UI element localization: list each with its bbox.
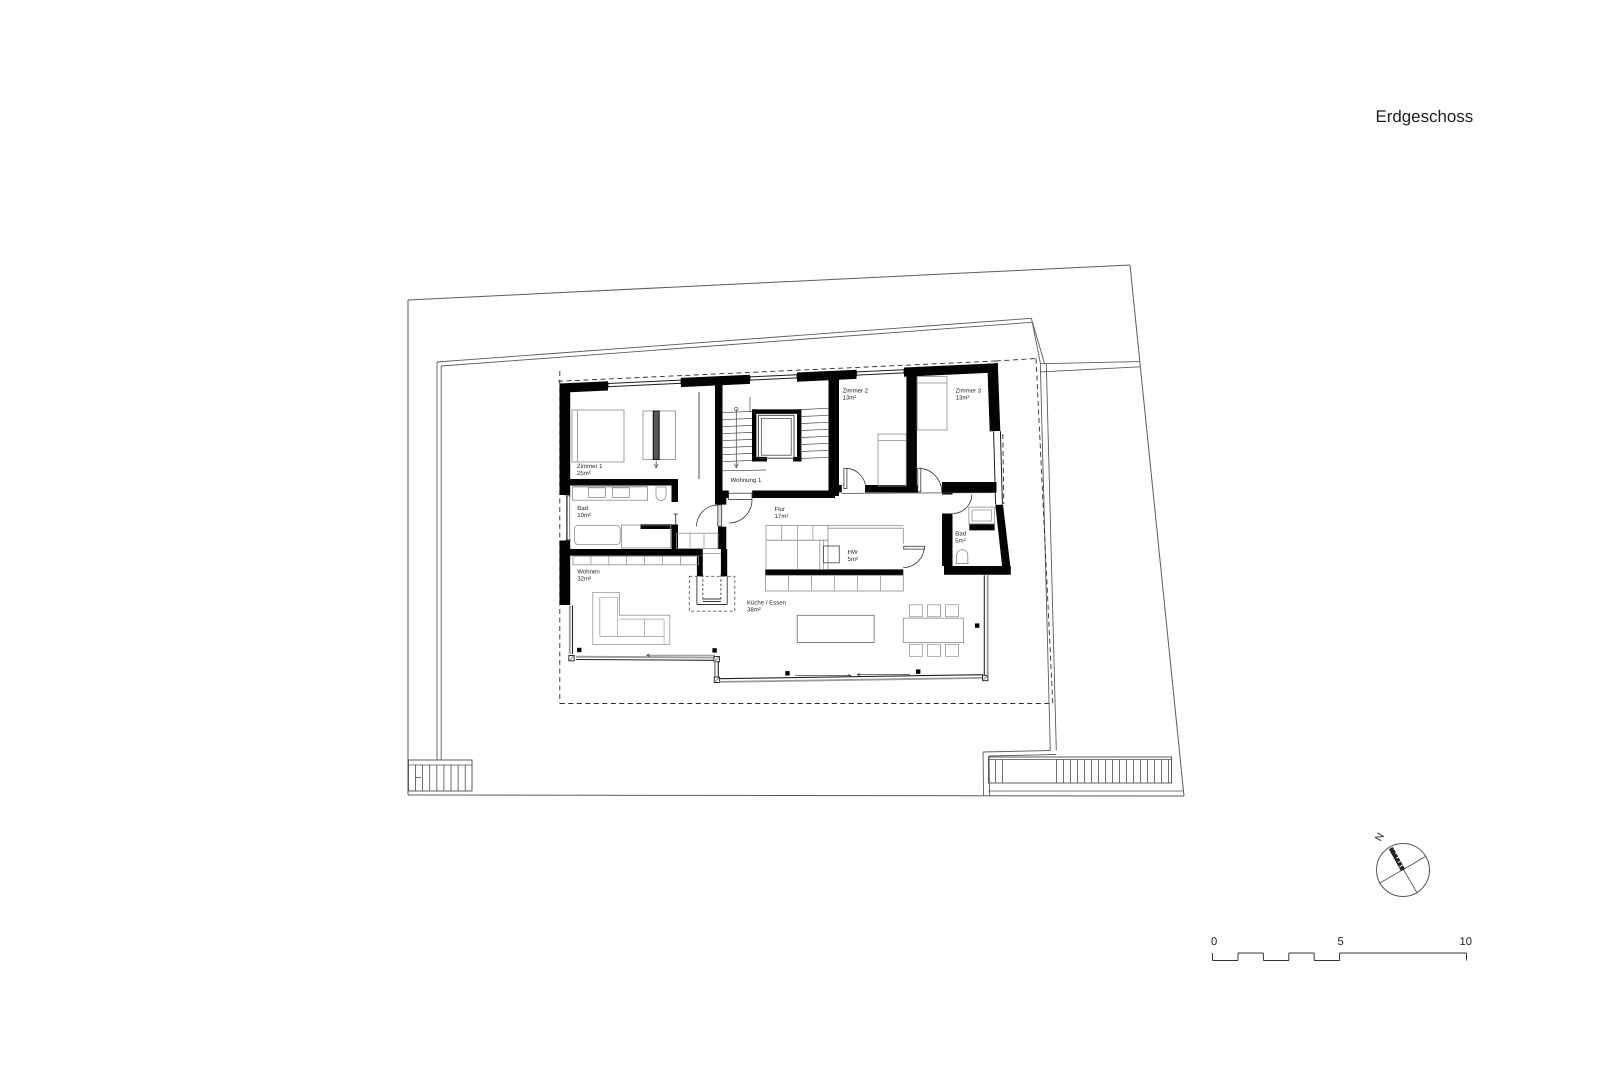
svg-text:38m²: 38m² <box>747 607 761 614</box>
svg-text:Bad: Bad <box>577 505 588 512</box>
svg-text:Wohnen: Wohnen <box>577 569 599 576</box>
svg-text:0: 0 <box>1211 936 1217 948</box>
svg-text:10: 10 <box>1460 936 1472 948</box>
svg-text:Erdgeschoss: Erdgeschoss <box>1376 107 1474 126</box>
svg-text:13m²: 13m² <box>956 395 970 402</box>
svg-text:32m²: 32m² <box>577 576 591 583</box>
svg-text:Zimmer 1: Zimmer 1 <box>577 463 603 470</box>
svg-text:Bad: Bad <box>955 531 966 538</box>
svg-text:25m²: 25m² <box>577 470 591 477</box>
svg-text:Wohnung 1: Wohnung 1 <box>731 477 762 484</box>
svg-text:Flur: Flur <box>775 506 785 513</box>
svg-text:5m²: 5m² <box>955 538 965 545</box>
svg-text:Küche / Essen: Küche / Essen <box>747 600 786 607</box>
svg-text:Zimmer 3: Zimmer 3 <box>956 388 982 395</box>
svg-text:13m²: 13m² <box>843 395 857 402</box>
svg-text:Zimmer 2: Zimmer 2 <box>843 388 869 395</box>
svg-text:5: 5 <box>1338 936 1344 948</box>
svg-text:HW: HW <box>848 549 858 556</box>
svg-text:17m²: 17m² <box>775 513 789 520</box>
svg-text:5m²: 5m² <box>848 556 858 563</box>
svg-text:10m²: 10m² <box>577 512 591 519</box>
